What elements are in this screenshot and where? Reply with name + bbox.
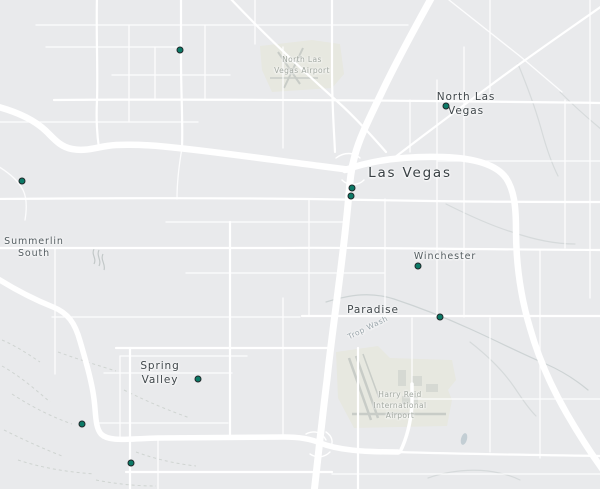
map-marker-6[interactable] xyxy=(415,263,422,270)
map-marker-10[interactable] xyxy=(128,460,135,467)
map-marker-4[interactable] xyxy=(349,185,356,192)
map-marker-9[interactable] xyxy=(79,421,86,428)
map-marker-1[interactable] xyxy=(177,47,184,54)
map-marker-3[interactable] xyxy=(443,103,450,110)
map-marker-5[interactable] xyxy=(348,193,355,200)
marker-layer xyxy=(0,0,600,489)
map-marker-8[interactable] xyxy=(195,376,202,383)
map-canvas[interactable]: North Las Vegas AirportNorth Las VegasLa… xyxy=(0,0,600,489)
map-marker-7[interactable] xyxy=(437,314,444,321)
map-marker-2[interactable] xyxy=(19,178,26,185)
